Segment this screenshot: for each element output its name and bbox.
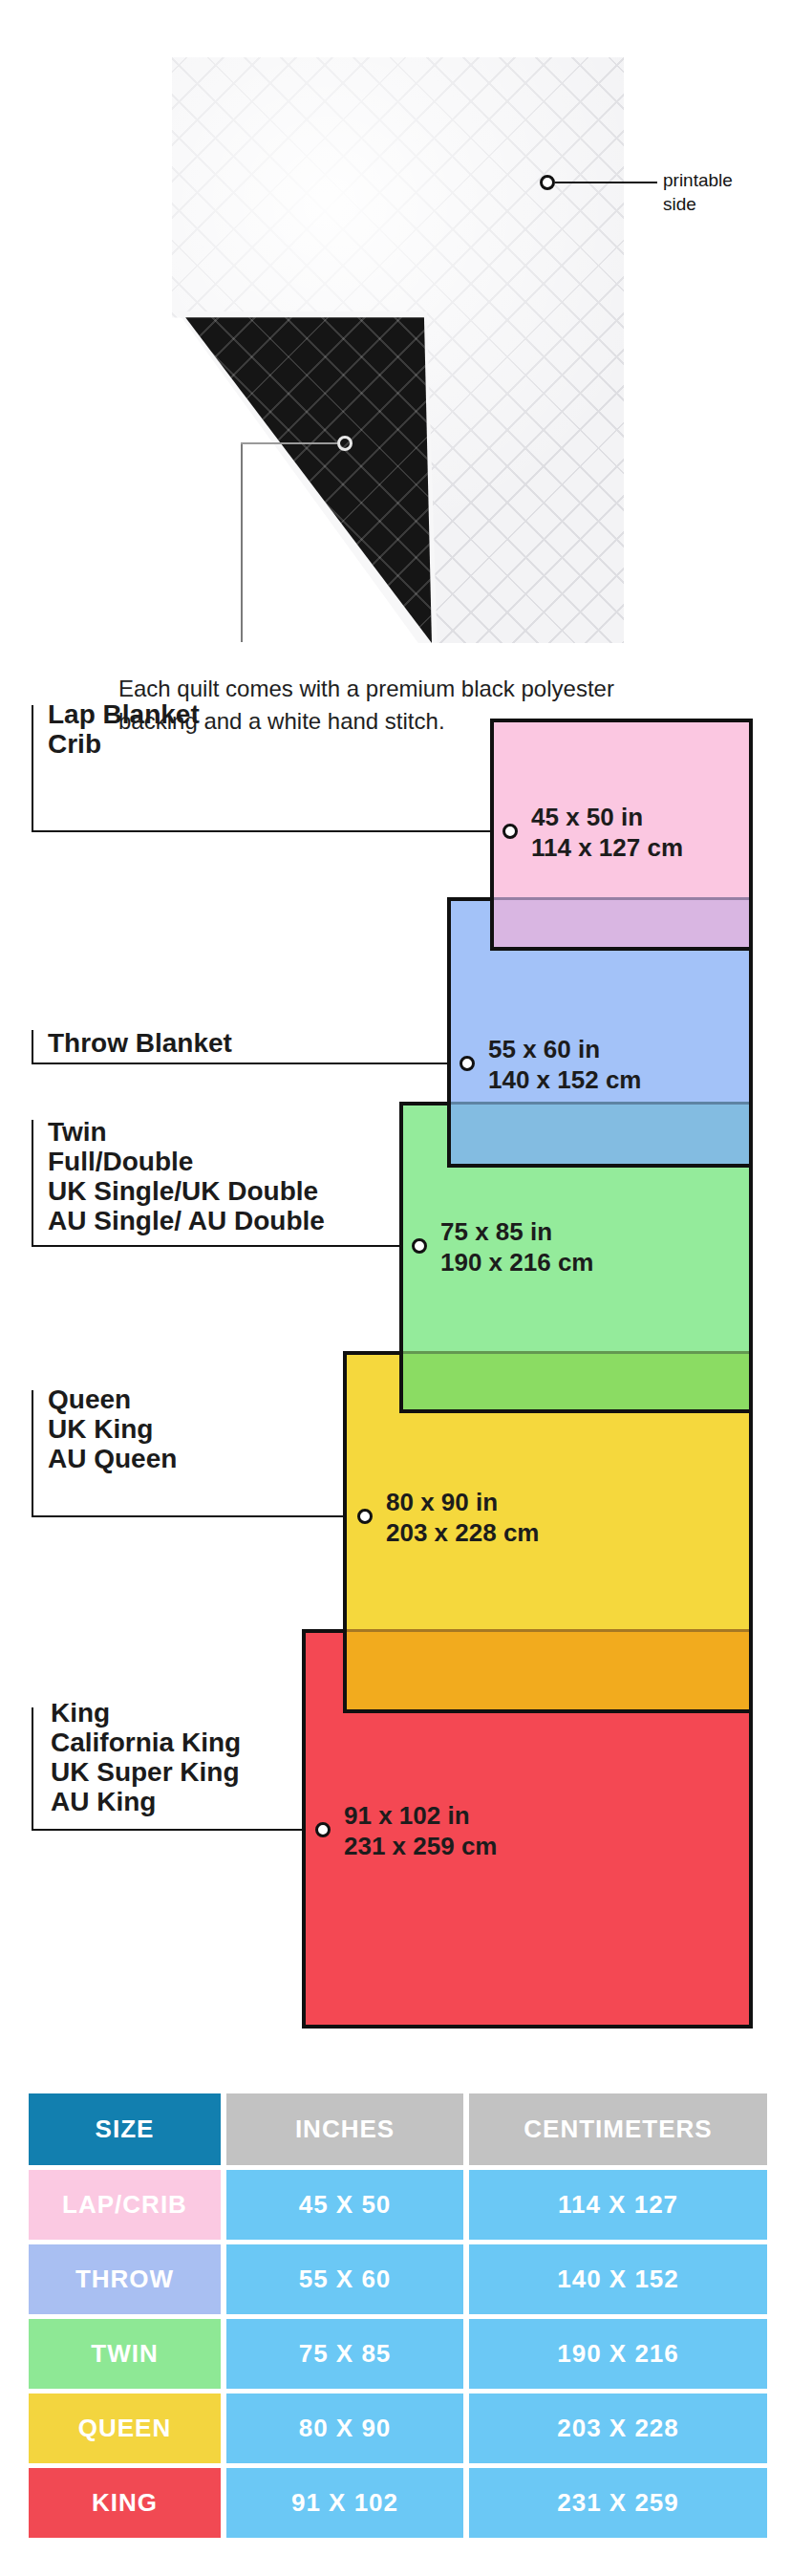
dimension-cm: 231 x 259 cm: [344, 1831, 497, 1861]
backing-callout-line-vertical: [241, 442, 243, 642]
table-row-label-throw: THROW: [29, 2244, 221, 2314]
dimension-inches: 45 x 50 in: [531, 802, 683, 832]
dimension-cm: 140 x 152 cm: [488, 1064, 641, 1095]
dimension-inches: 75 x 85 in: [440, 1216, 593, 1247]
callout-line-vertical-lap: [32, 705, 33, 832]
dimension-label-lap: 45 x 50 in 114 x 127 cm: [531, 802, 683, 863]
size-guide-infographic: printable side Each quilt comes with a p…: [0, 0, 791, 2576]
table-cell-inches: 45 X 50: [226, 2170, 463, 2240]
printable-side-callout-dot: [540, 175, 555, 190]
size-group-label-throw: Throw Blanket: [48, 1028, 232, 1058]
dimension-label-queen: 80 x 90 in 203 x 228 cm: [386, 1487, 539, 1548]
table-row-label-twin: TWIN: [29, 2319, 221, 2389]
table-cell-inches: 80 X 90: [226, 2394, 463, 2463]
callout-dot-twin: [412, 1238, 427, 1254]
table-cell-cm: 114 X 127: [469, 2170, 767, 2240]
dimension-inches: 91 x 102 in: [344, 1800, 497, 1831]
table-cell-inches: 55 X 60: [226, 2244, 463, 2314]
table-header-centimeters: CENTIMETERS: [469, 2093, 767, 2165]
overlap-band-lap-over-throw: [494, 897, 749, 947]
callout-line-horizontal-lap: [32, 830, 504, 832]
dimension-label-throw: 55 x 60 in 140 x 152 cm: [488, 1034, 641, 1095]
table-cell-cm: 190 X 216: [469, 2319, 767, 2389]
callout-line-vertical-king: [32, 1707, 33, 1831]
size-group-label-queen: Queen UK King AU Queen: [48, 1385, 177, 1473]
size-table: SIZE INCHES CENTIMETERS LAP/CRIB 45 X 50…: [29, 2093, 767, 2538]
callout-line-vertical-twin: [32, 1120, 33, 1247]
backing-callout-line-horizontal: [241, 442, 337, 444]
callout-line-horizontal-queen: [32, 1515, 359, 1517]
dimension-label-twin: 75 x 85 in 190 x 216 cm: [440, 1216, 593, 1277]
table-row-label-king: KING: [29, 2468, 221, 2538]
callout-dot-throw: [460, 1056, 475, 1071]
callout-line-horizontal-throw: [32, 1063, 461, 1064]
table-header-inches: INCHES: [226, 2093, 463, 2165]
table-cell-cm: 140 X 152: [469, 2244, 767, 2314]
quilt-product-image: [172, 57, 624, 643]
dimension-inches: 55 x 60 in: [488, 1034, 641, 1064]
overlap-band-queen-over-king: [347, 1629, 749, 1709]
callout-line-vertical-throw: [32, 1030, 33, 1064]
table-row-label-lap: LAP/CRIB: [29, 2170, 221, 2240]
size-group-label-twin: Twin Full/Double UK Single/UK Double AU …: [48, 1117, 325, 1235]
callout-dot-king: [315, 1822, 331, 1837]
table-cell-inches: 75 X 85: [226, 2319, 463, 2389]
callout-dot-queen: [357, 1509, 373, 1524]
table-header-size: SIZE: [29, 2093, 221, 2165]
dimension-cm: 114 x 127 cm: [531, 832, 683, 863]
callout-line-horizontal-king: [32, 1829, 317, 1831]
printable-side-callout-line: [555, 182, 657, 183]
dimension-cm: 190 x 216 cm: [440, 1247, 593, 1277]
size-group-label-lap: Lap Blanket Crib: [48, 699, 200, 759]
dimension-label-king: 91 x 102 in 231 x 259 cm: [344, 1800, 497, 1861]
size-group-label-king: King California King UK Super King AU Ki…: [51, 1698, 241, 1816]
table-cell-cm: 203 X 228: [469, 2394, 767, 2463]
callout-dot-lap: [502, 824, 518, 839]
printable-side-label: printable side: [663, 168, 768, 216]
table-cell-inches: 91 X 102: [226, 2468, 463, 2538]
overlap-band-throw-over-twin: [451, 1102, 749, 1164]
callout-line-vertical-queen: [32, 1390, 33, 1517]
table-cell-cm: 231 X 259: [469, 2468, 767, 2538]
callout-line-horizontal-twin: [32, 1245, 414, 1247]
dimension-inches: 80 x 90 in: [386, 1487, 539, 1517]
table-row-label-queen: QUEEN: [29, 2394, 221, 2463]
dimension-cm: 203 x 228 cm: [386, 1517, 539, 1548]
overlap-band-twin-over-queen: [403, 1351, 749, 1409]
backing-callout-dot: [337, 436, 353, 451]
